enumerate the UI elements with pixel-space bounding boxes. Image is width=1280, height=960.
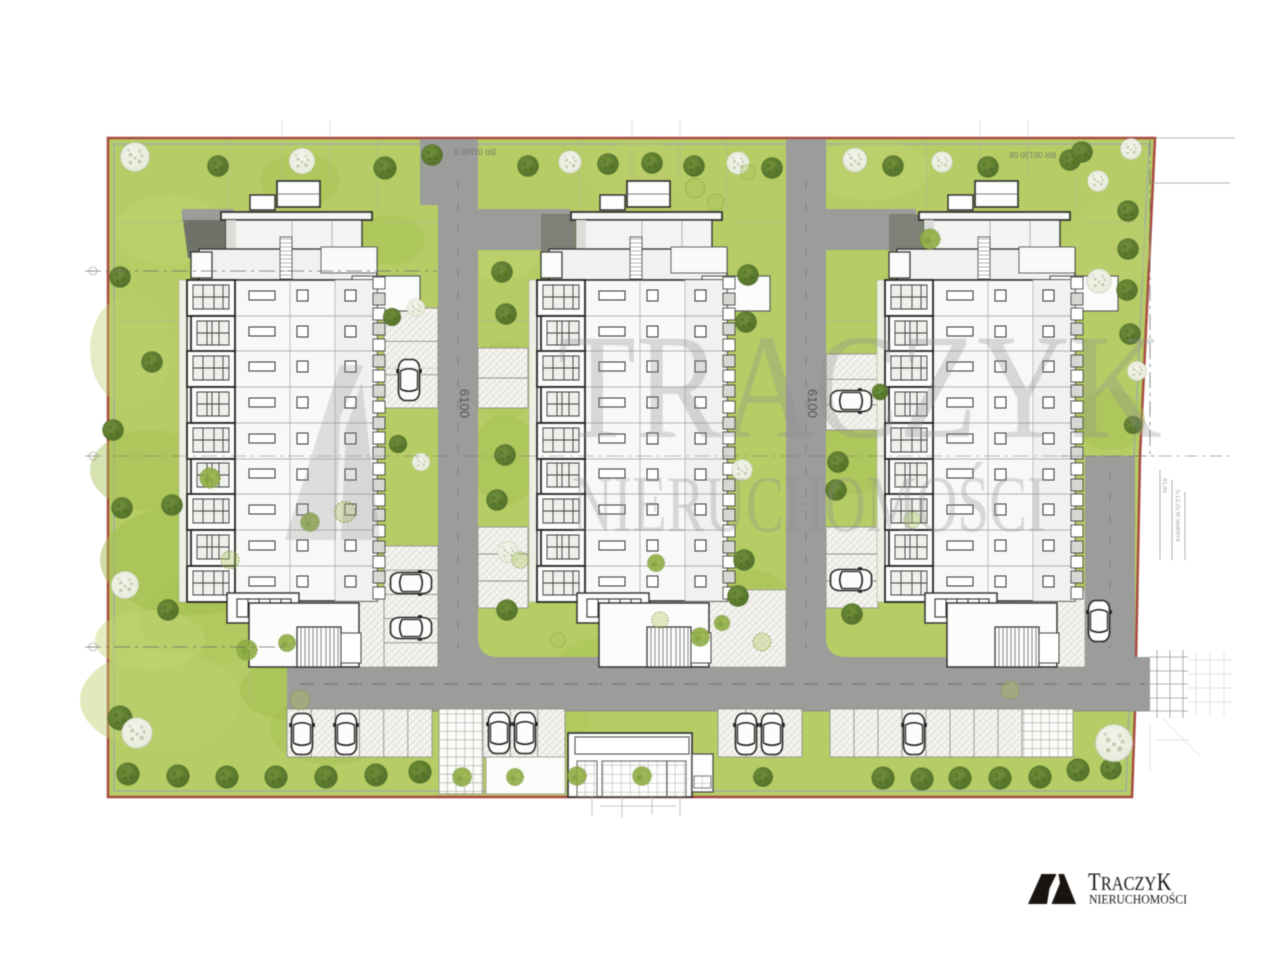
svg-text:41,95: 41,95 bbox=[1161, 478, 1167, 494]
svg-text:TRACZYK: TRACZYK bbox=[558, 304, 1162, 470]
svg-text:6100: 6100 bbox=[457, 389, 472, 418]
svg-text:NIERUCHOMOŚCI: NIERUCHOMOŚCI bbox=[1089, 893, 1187, 907]
svg-text:5,13,25 M 56x69+8: 5,13,25 M 56x69+8 bbox=[1174, 490, 1180, 542]
svg-text:BR 01160 B: BR 01160 B bbox=[453, 147, 496, 156]
svg-text:NIERUCHOMOŚCI: NIERUCHOMOŚCI bbox=[572, 461, 1046, 549]
svg-text:BR 06130 08: BR 06130 08 bbox=[1009, 150, 1056, 159]
